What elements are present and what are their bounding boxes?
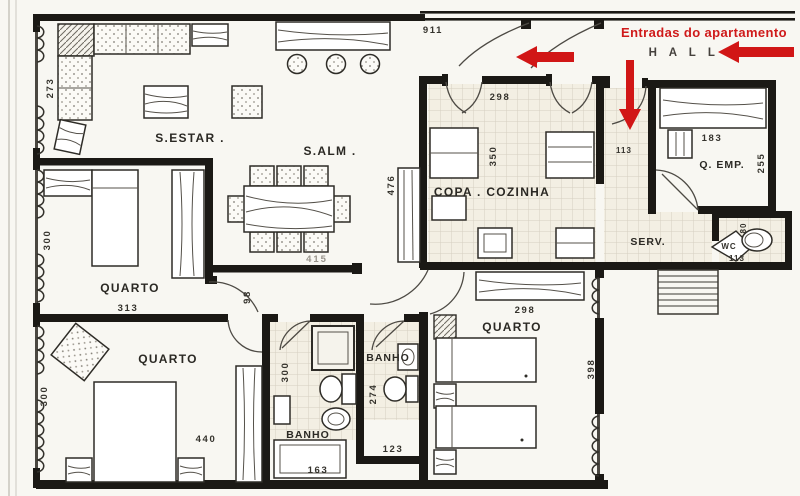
bed-single	[92, 170, 138, 266]
dim-440: 440	[196, 434, 217, 445]
tall-cabinet	[398, 168, 420, 262]
wc-label: WC	[721, 242, 736, 251]
stool-1	[288, 55, 307, 74]
dim-163: 163	[308, 465, 329, 476]
service-label: SERV.	[630, 236, 665, 248]
kitchen-sink	[478, 228, 512, 258]
sideboard	[276, 22, 390, 50]
dining-chair	[277, 232, 301, 252]
toilet-tank	[342, 374, 356, 404]
bed-single	[436, 406, 536, 448]
dim-298-kitchen: 298	[490, 92, 511, 103]
floor-plan-page: Entradas do apartamento H A L L S.ESTAR …	[0, 0, 800, 496]
toilet	[384, 377, 406, 401]
dining-chair	[250, 232, 274, 252]
dim-80: 80	[739, 223, 748, 234]
kitchen-cabinet	[432, 196, 466, 220]
service-stairs	[658, 270, 718, 314]
nightstand	[66, 458, 92, 482]
sofa-top	[94, 24, 190, 54]
dim-911: 911	[423, 25, 443, 36]
dim-183: 183	[702, 133, 723, 144]
wardrobe	[236, 366, 262, 482]
wardrobe	[172, 170, 204, 278]
dim-313: 313	[118, 303, 139, 314]
sofa-end-table	[54, 120, 86, 155]
nightstand	[178, 458, 204, 482]
hall-label: H A L L	[649, 47, 720, 59]
kitchen-island	[546, 132, 594, 178]
dresser	[44, 170, 92, 196]
sink	[274, 396, 290, 424]
entrance-note-label: Entradas do apartamento	[621, 25, 787, 40]
bedroom-mid-label: QUARTO	[100, 281, 160, 295]
dim-300-bottom: 300	[39, 386, 50, 407]
nightstand	[434, 450, 456, 474]
toilet-tank	[406, 376, 418, 402]
nightstand	[434, 384, 456, 408]
dining-chair	[304, 232, 328, 252]
dim-350: 350	[488, 146, 499, 167]
bedroom-bottom-label: QUARTO	[138, 352, 198, 366]
dim-298-bedroom: 298	[515, 305, 536, 316]
dining-chair	[250, 166, 274, 186]
dim-98: 98	[242, 290, 253, 304]
dim-476: 476	[386, 175, 397, 196]
dim-398: 398	[586, 359, 597, 380]
dim-255: 255	[756, 153, 767, 174]
bidet	[322, 408, 350, 430]
dim-300-mid: 300	[42, 230, 53, 251]
dim-273: 273	[45, 78, 56, 99]
living-label: S.ESTAR .	[155, 131, 225, 145]
bath2-label: BANHO	[366, 352, 410, 364]
dim-123: 123	[383, 444, 404, 455]
maid-room-label: Q. EMP.	[699, 159, 744, 171]
stool-2	[327, 55, 346, 74]
nightstand	[434, 315, 456, 339]
dining-chair	[304, 166, 328, 186]
dim-300-bath: 300	[280, 362, 291, 383]
maid-bed	[660, 88, 766, 128]
armchair	[232, 86, 262, 118]
bath1-label: BANHO	[286, 429, 330, 441]
bedroom-right-label: QUARTO	[482, 320, 542, 334]
dim-113-corridor: 113	[616, 146, 632, 155]
bed-single	[436, 338, 536, 382]
wardrobe	[476, 272, 584, 300]
side-table	[192, 24, 228, 46]
kitchen-label: COPA . COZINHA	[434, 185, 550, 199]
stool-3	[361, 55, 380, 74]
sofa-corner	[58, 24, 94, 56]
toilet	[320, 376, 342, 402]
bed-double	[94, 382, 176, 482]
dim-274: 274	[368, 384, 379, 405]
maid-wardrobe	[668, 130, 692, 158]
dim-113-wc: 113	[729, 254, 745, 263]
dining-label: S.ALM .	[303, 144, 356, 158]
dining-chair	[277, 166, 301, 186]
floor-plan-svg: Entradas do apartamento H A L L S.ESTAR …	[0, 0, 800, 496]
dim-415: 415	[306, 254, 328, 265]
